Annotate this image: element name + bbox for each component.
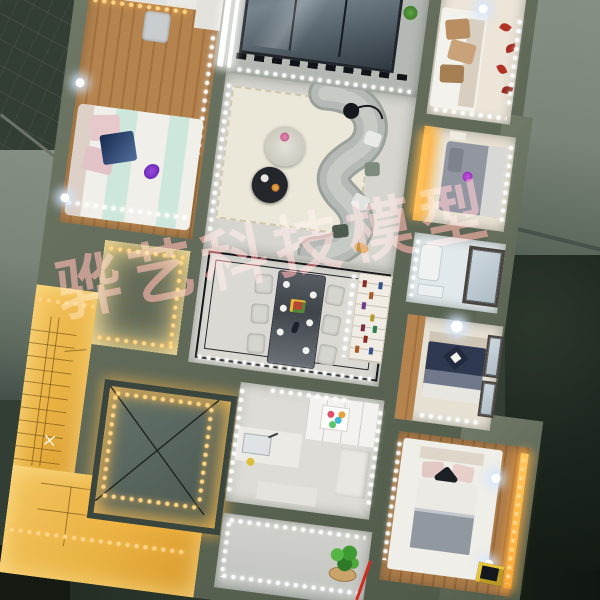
- nightstand: [449, 131, 466, 141]
- terrace-plant: [403, 5, 419, 21]
- dining-chair: [254, 273, 273, 294]
- plate: [276, 328, 284, 336]
- dark-art-yellow: [475, 562, 504, 587]
- red-leaf-decal: [496, 63, 507, 75]
- room-living: [203, 72, 416, 273]
- led-white-balcony-left: [219, 521, 231, 577]
- crystal-lamp-study: [75, 78, 85, 88]
- wine-bottle: [362, 280, 367, 287]
- wine-bottle: [369, 292, 374, 299]
- wine-bottle: [361, 302, 366, 309]
- kitchen-island: [256, 481, 318, 507]
- pillow-tan-1: [445, 18, 470, 40]
- bathroom-window: [462, 246, 505, 308]
- wine-bottle: [355, 346, 360, 353]
- gray-blanket: [410, 508, 475, 555]
- room-amber-headboard: [412, 126, 516, 232]
- art-heart: [327, 410, 335, 418]
- chandelier-navy-room: [450, 320, 463, 333]
- room-bathroom: [406, 232, 506, 313]
- sofa-pillow-sage: [365, 162, 380, 176]
- lemon: [246, 457, 255, 466]
- purple-flower-decor: [142, 161, 162, 182]
- crystal-lamp-master-1: [491, 473, 501, 483]
- plate: [306, 319, 314, 327]
- navy-room-window-2: [477, 380, 498, 418]
- plate: [283, 281, 291, 289]
- shower-tray: [417, 243, 444, 282]
- wine-bottle-on-table: [290, 321, 300, 334]
- star-pillow-diamond: [450, 352, 461, 363]
- room-master-bedroom: [379, 431, 529, 597]
- red-leaf-decal: [499, 21, 512, 33]
- dining-chair: [246, 333, 265, 354]
- glass-reflection: [243, 0, 400, 63]
- desk-chair: [142, 10, 172, 43]
- blueprint-dim-line: [65, 349, 87, 352]
- green-plant: [325, 541, 363, 577]
- wine-bottle: [378, 282, 383, 289]
- dining-chair: [250, 303, 269, 324]
- wine-bottle: [370, 314, 375, 321]
- sushi-platter: [289, 299, 306, 314]
- sofa-pillow-green: [332, 224, 349, 239]
- vanity: [417, 283, 444, 298]
- pillow-navy-glossy: [99, 131, 137, 166]
- plate: [309, 291, 317, 299]
- pillow-tan-3: [439, 64, 464, 83]
- room-kitchen: [225, 382, 384, 520]
- photo-canvas: 骅艺科技模型: [0, 0, 600, 600]
- wine-bottle: [361, 324, 366, 331]
- plate: [279, 304, 287, 312]
- wine-bottle: [363, 336, 368, 343]
- north-arrow: [44, 435, 55, 446]
- kitchen-art: [319, 405, 350, 432]
- led-warm-blueprint: [37, 297, 95, 310]
- led-warm-blueprint-bottom: [8, 527, 187, 555]
- plate: [302, 347, 310, 355]
- room-navy-bedroom: [394, 314, 503, 431]
- tall-cabinet: [335, 447, 371, 499]
- room-amber-lit: [92, 240, 191, 355]
- apartment-model: [0, 0, 549, 600]
- wine-bottle: [369, 347, 374, 354]
- wine-bottle: [372, 326, 377, 333]
- skylight-x-panel: [87, 379, 238, 535]
